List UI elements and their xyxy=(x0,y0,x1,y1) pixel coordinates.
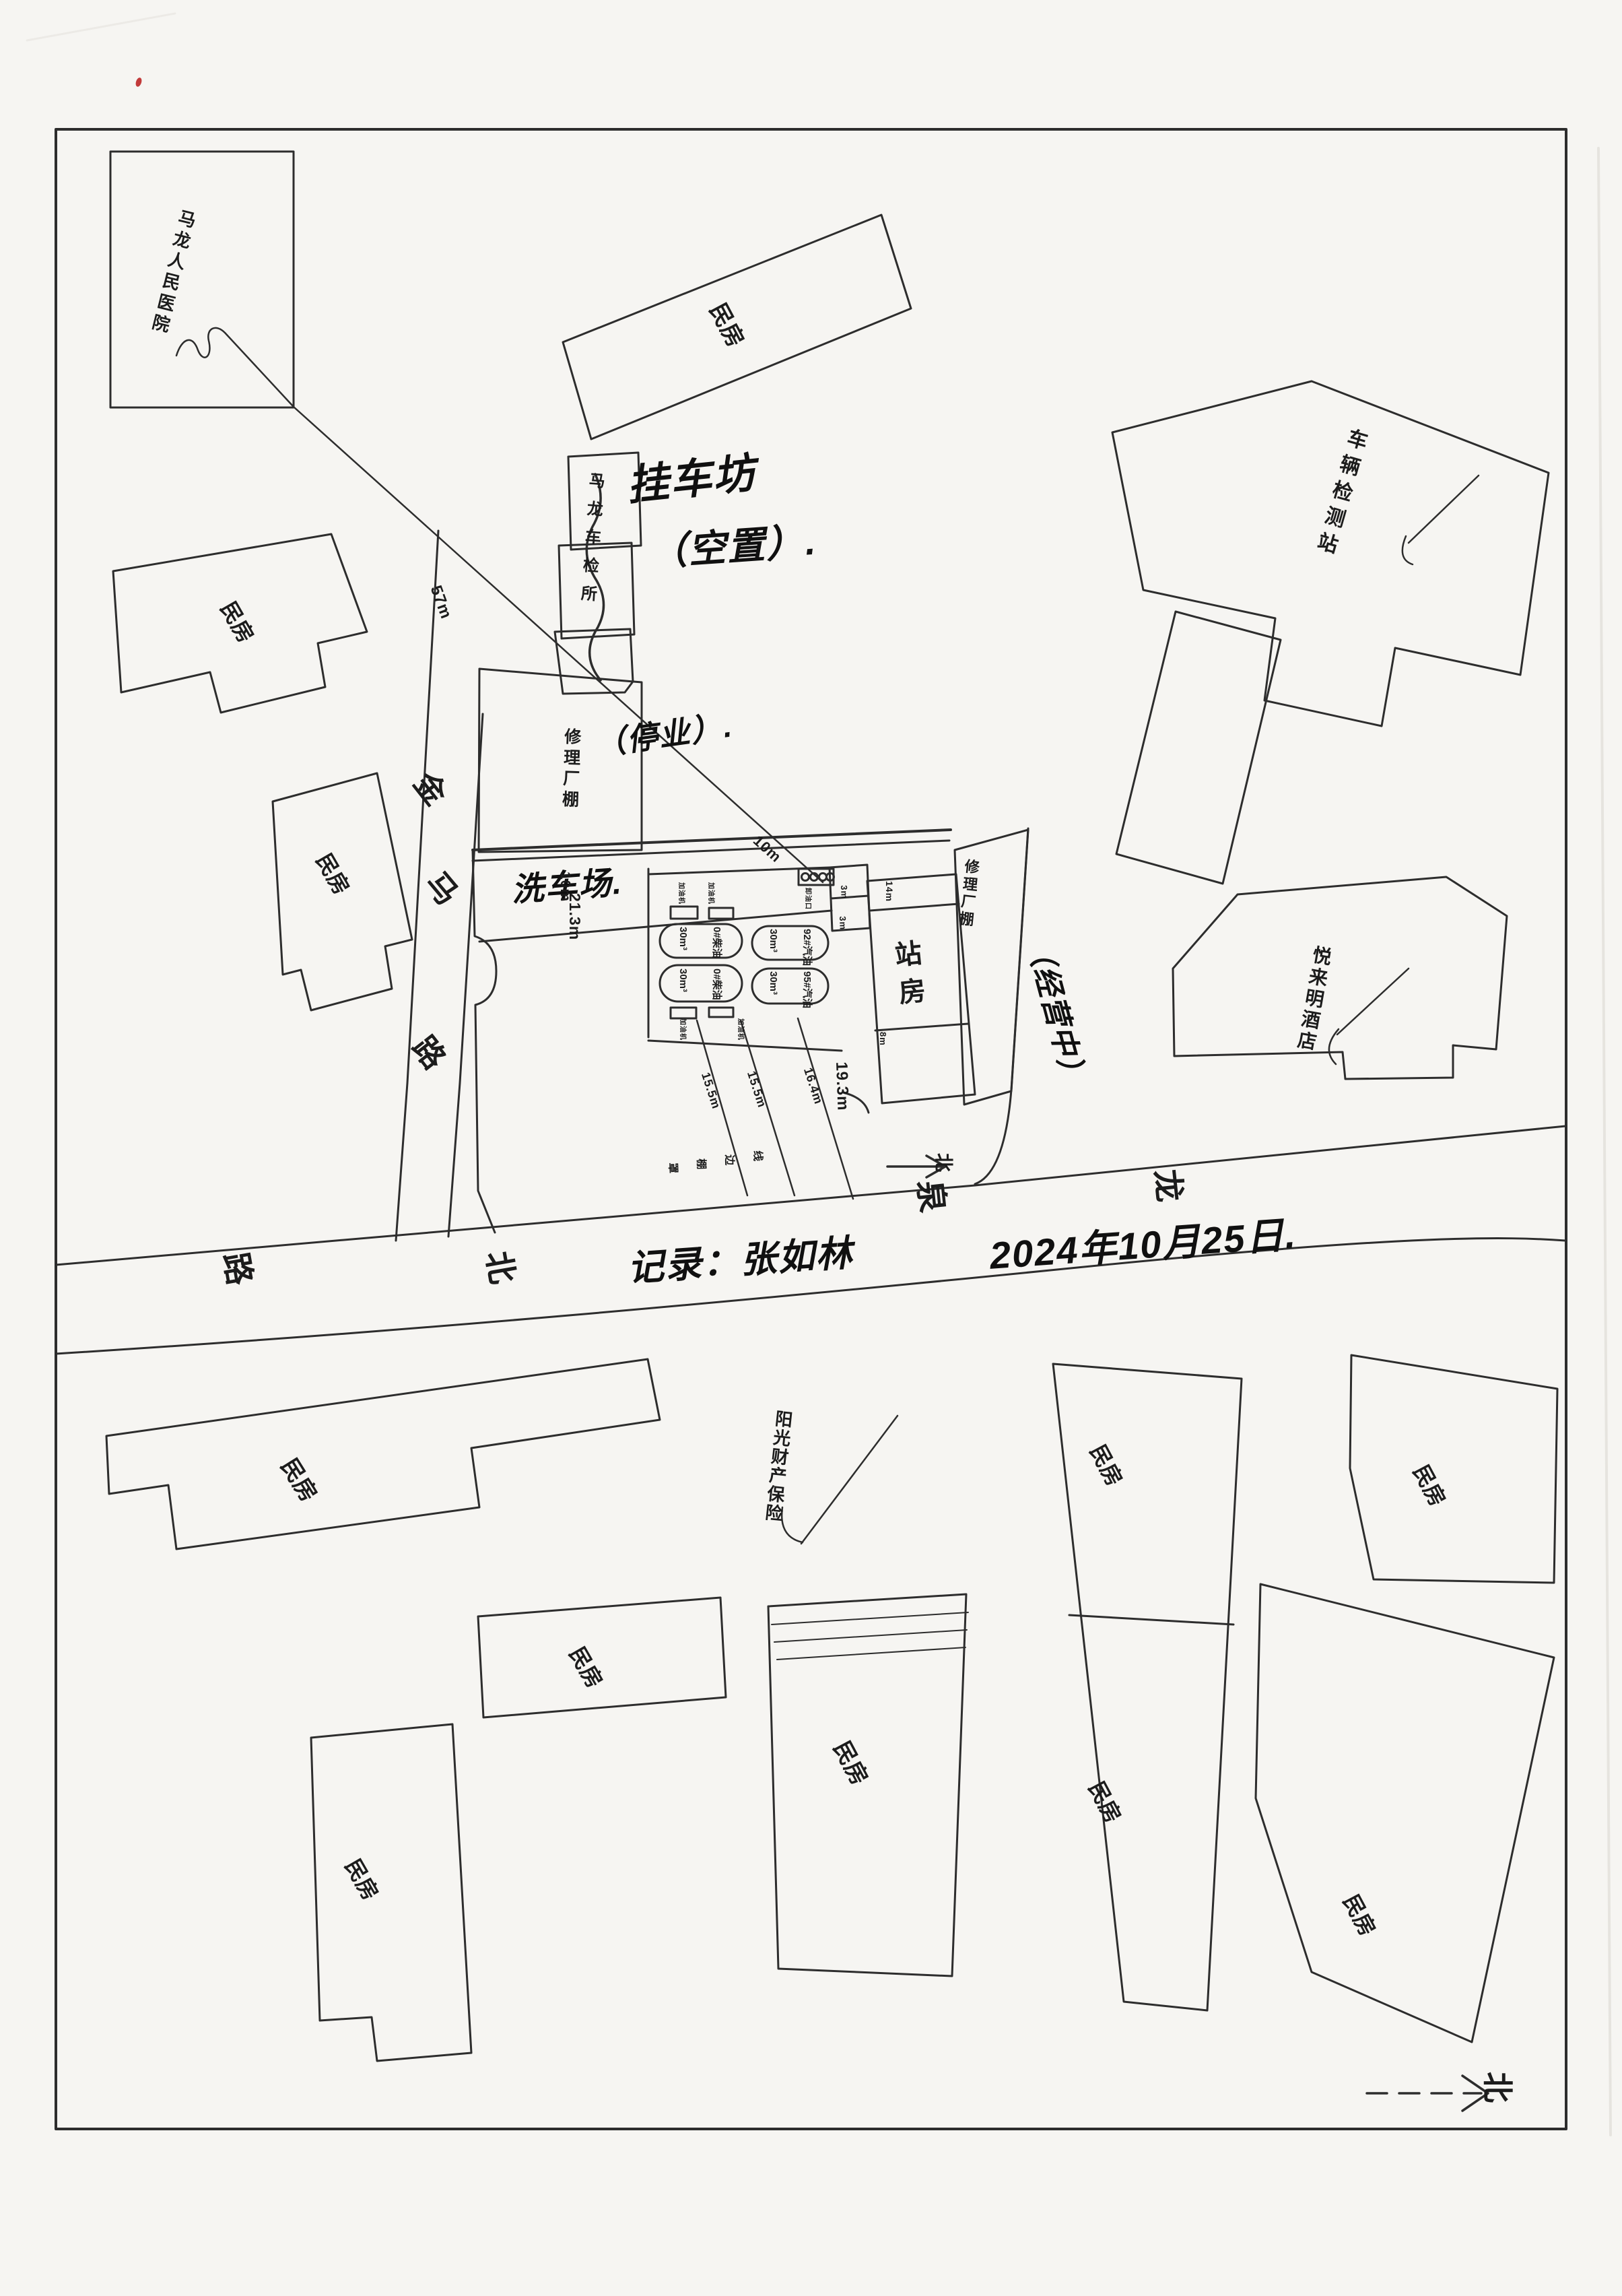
road-name-char: 路 xyxy=(217,1250,256,1288)
fuel-tank xyxy=(752,926,828,960)
dispenser-label: 加油机 xyxy=(677,882,685,905)
dispenser-label: 加油机 xyxy=(737,1018,744,1041)
paper-crease xyxy=(1598,148,1611,2135)
building-hatch-lines xyxy=(772,1612,968,1660)
tank-product: 92#汽油 xyxy=(801,929,812,966)
hotel-leader xyxy=(1329,969,1409,1064)
residential-building xyxy=(478,1598,726,1717)
dispenser-label: 加油机 xyxy=(679,1018,686,1041)
inspection-station-leader xyxy=(1403,475,1479,564)
road-name-char: 泉 xyxy=(912,1179,949,1214)
fuel-tank xyxy=(752,969,828,1004)
tank-capacity: 30m³ xyxy=(677,969,688,992)
road-name-char: 龙 xyxy=(1149,1168,1186,1204)
repair-shed-label: 修理厂棚 xyxy=(560,727,581,812)
tank-capacity: 30m³ xyxy=(768,971,778,995)
repair-shed-closed-building xyxy=(479,669,642,852)
residential-building xyxy=(1350,1355,1557,1583)
hotel-building xyxy=(1173,877,1507,1079)
road-name-char: 北 xyxy=(479,1249,518,1286)
dispenser-island xyxy=(671,907,698,919)
tank-capacity: 30m³ xyxy=(677,927,688,950)
inspection-station-wing xyxy=(1116,612,1281,884)
small-rooms xyxy=(830,865,870,931)
tank-product: 0#柴油 xyxy=(711,927,722,958)
residential-building xyxy=(768,1594,966,1976)
north-label: 北 xyxy=(1481,2072,1514,2103)
canopy-edge-char: 线 xyxy=(751,1150,762,1162)
dim-3m: 3m xyxy=(839,885,848,899)
insurance-leader xyxy=(782,1416,898,1544)
tank-product: 0#柴油 xyxy=(711,969,722,1000)
residential-building xyxy=(311,1724,471,2061)
dim-14m: 14m xyxy=(884,881,894,902)
residential-building xyxy=(1256,1584,1554,2042)
scanned-site-plan: 马龙人民医院 民房 民房 民房 民房 民房 民房 民房 民房 民房 民房 民房 … xyxy=(0,0,1622,2296)
dispenser-island xyxy=(671,1008,696,1018)
unloading-manhole xyxy=(802,874,809,881)
map-frame xyxy=(56,129,1566,2129)
paper-crease xyxy=(27,13,175,40)
fuel-tank xyxy=(660,965,742,1002)
unloading-label: 卸油口 xyxy=(804,888,811,910)
residential-building xyxy=(106,1359,660,1549)
hospital-building xyxy=(110,152,294,407)
canopy-edge-char: 棚 xyxy=(694,1158,706,1170)
building-divider xyxy=(1069,1615,1234,1625)
dim-8m: 8m xyxy=(878,1032,887,1046)
dispenser-island xyxy=(709,1008,733,1017)
mid-north-label: 北 xyxy=(934,1153,953,1172)
unloading-manhole xyxy=(819,874,827,881)
station-parcel-top-edge xyxy=(473,830,951,850)
station-parcel-west-edge xyxy=(473,850,496,1233)
canopy-edge-char: 罩 xyxy=(666,1162,677,1174)
tank-product: 95#汽油 xyxy=(801,971,812,1008)
dim-10m: 10m xyxy=(557,872,572,902)
dim-3m: 3m xyxy=(838,916,847,930)
hospital-distance-leader-line xyxy=(176,328,823,882)
site-plan-drawing xyxy=(0,0,1622,2296)
dim-19-3m: 19.3m xyxy=(833,1061,852,1111)
tank-capacity: 30m³ xyxy=(768,929,778,952)
station-parcel-east-edge xyxy=(975,828,1028,1184)
dispenser-label: 加油机 xyxy=(707,882,714,905)
fuel-tank xyxy=(660,924,742,958)
red-ink-mark xyxy=(135,77,143,88)
dimension-leader-lines xyxy=(697,1018,853,1199)
residential-building xyxy=(1053,1364,1242,2010)
dispenser-island xyxy=(709,908,733,919)
canopy-edge-char: 边 xyxy=(722,1154,734,1166)
